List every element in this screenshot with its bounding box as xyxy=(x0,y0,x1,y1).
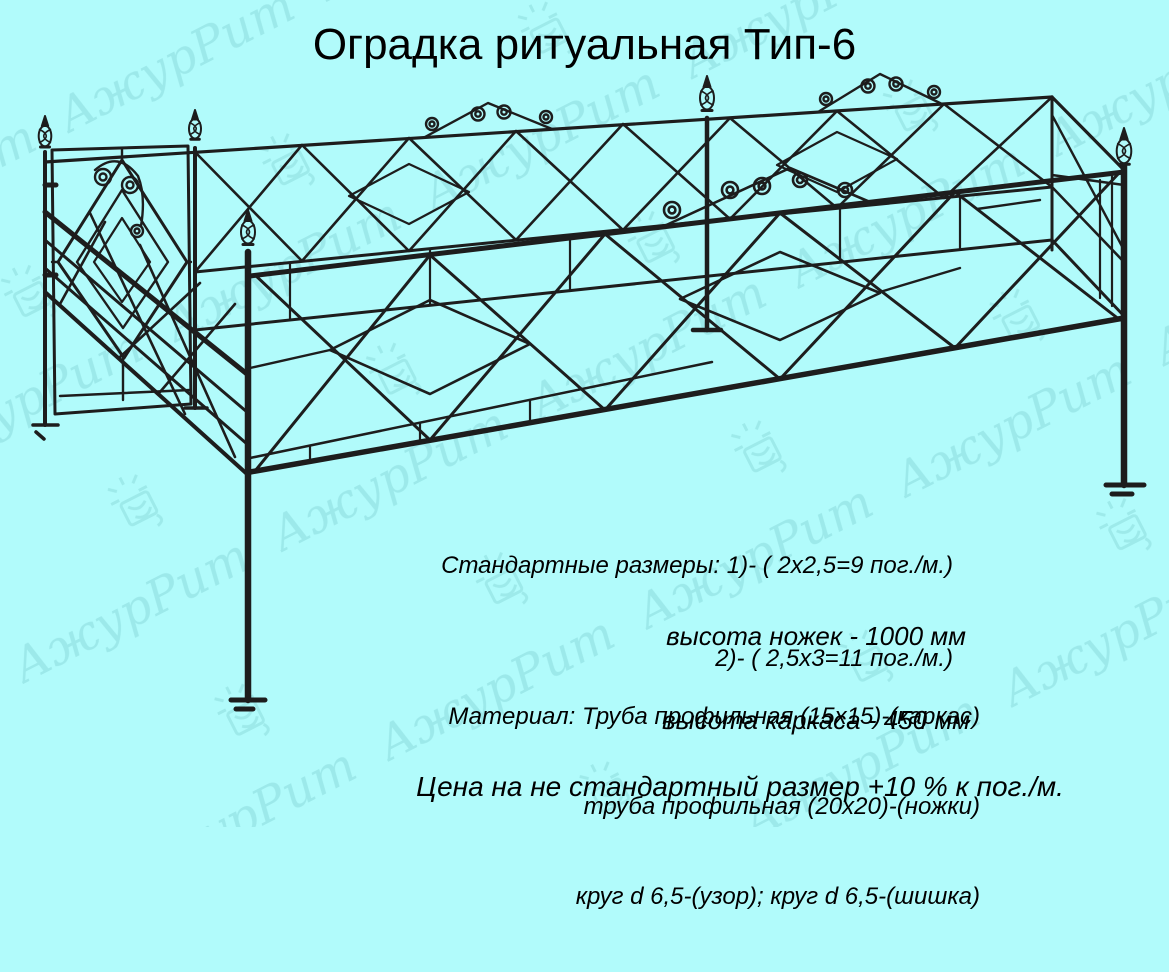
page-title: Оградка ритуальная Тип-6 xyxy=(0,20,1169,70)
material-block: Материал: Труба профильная (15х15)-(карк… xyxy=(448,642,980,972)
price-note: Цена на не стандартный размер +10 % к по… xyxy=(360,771,1120,803)
material-line3: круг d 6,5-(узор); круг d 6,5-(шишка) xyxy=(448,882,980,912)
catalog-page: АжурРит xyxy=(0,0,1169,827)
material-line1: Материал: Труба профильная (15х15)-(карк… xyxy=(448,702,980,732)
